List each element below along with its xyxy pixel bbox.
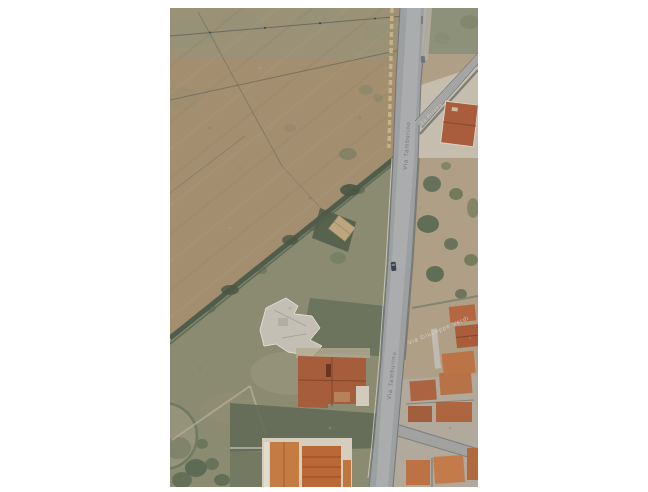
aerial-photo: Via Tamburino Via Tamburino Via Giuseppe… xyxy=(170,8,478,487)
aerial-photo-canvas: Via Tamburino Via Tamburino Via Giuseppe… xyxy=(170,8,478,487)
car-top xyxy=(421,56,425,63)
terracotta-building xyxy=(296,348,370,408)
terrace-patch xyxy=(356,386,369,406)
scanned-page: Via Tamburino Via Tamburino Via Giuseppe… xyxy=(0,0,648,492)
scrub-top-right xyxy=(426,8,478,54)
bottom-right-buildings xyxy=(393,371,478,487)
car-on-road xyxy=(391,262,397,271)
bottom-center-buildings xyxy=(262,438,352,487)
red-roof-house-top xyxy=(441,101,478,147)
